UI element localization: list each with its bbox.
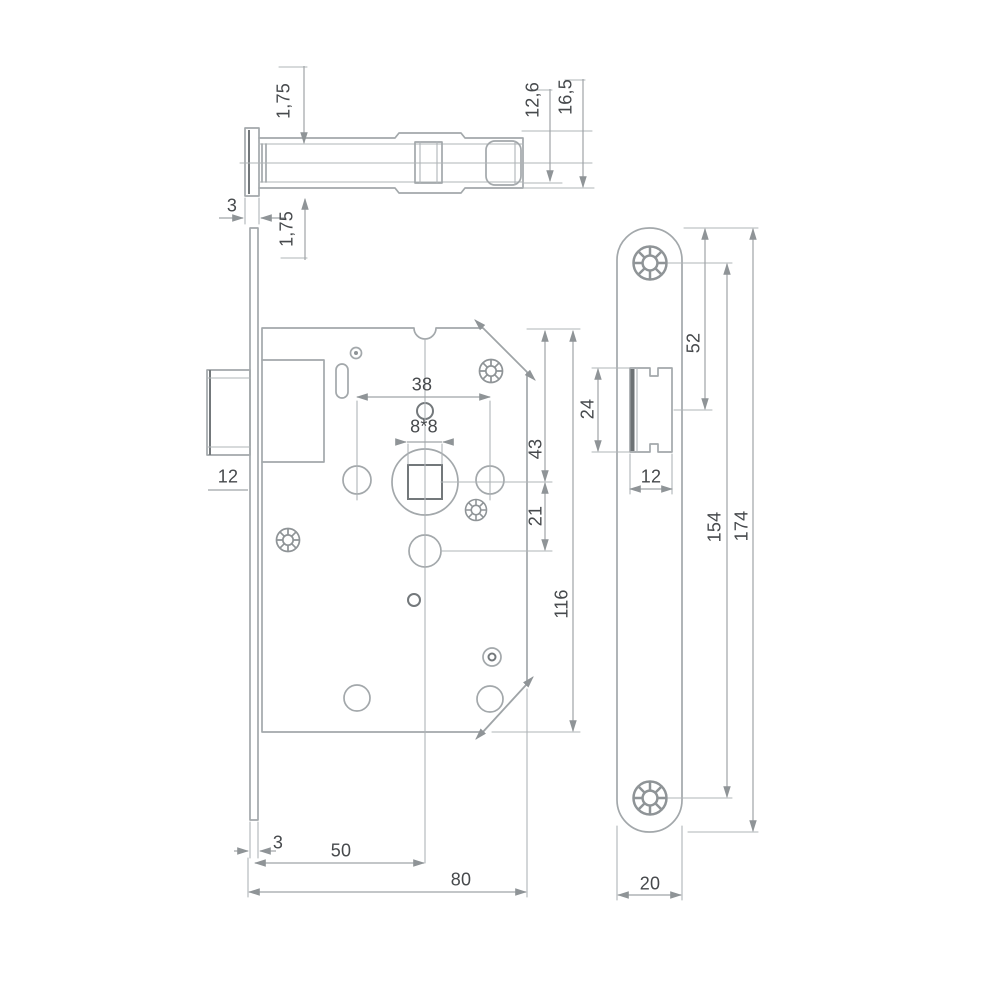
dim-label-front-spindle-square: 8*8 xyxy=(410,417,438,438)
dim-label-front-latch-width: 12 xyxy=(218,467,238,488)
lock-case-outline xyxy=(262,328,527,732)
fixing-hole xyxy=(477,686,503,712)
dim-label-front-spindle-to-lower: 21 xyxy=(526,506,547,526)
dim-label-front-case-height: 116 xyxy=(552,589,573,618)
latch-bolt xyxy=(207,370,250,455)
latch-body xyxy=(262,360,324,462)
dim-label-top-total-height: 16,5 xyxy=(556,79,577,115)
dim-label-front-hole-spacing: 38 xyxy=(412,375,432,396)
dim-label-top-offset-lower: 1,75 xyxy=(277,211,298,247)
faceplate-outline xyxy=(617,228,682,832)
dim-label-front-plate-thickness: 3 xyxy=(273,833,283,854)
dim-label-side-latch-width: 12 xyxy=(641,467,661,488)
dim-label-side-top-to-latch: 52 xyxy=(684,333,705,353)
fixing-hole xyxy=(344,685,370,711)
dim-label-top-inner-height: 12,6 xyxy=(523,82,544,118)
torx-screw-icon xyxy=(480,360,503,383)
lock-technical-drawing: 1,75 3 1,75 12,6 16,5 12 38 8*8 43 21 11… xyxy=(0,0,1000,1000)
dim-label-side-plate-length: 174 xyxy=(732,511,753,542)
dim-label-side-latch-height: 24 xyxy=(578,399,599,419)
faceplate-section xyxy=(245,128,259,196)
side-view xyxy=(592,228,758,900)
dim-label-side-screw-spacing: 154 xyxy=(705,512,726,543)
drawing-linework xyxy=(0,0,1000,1000)
dim-label-front-case-depth: 80 xyxy=(451,870,471,891)
dim-label-top-plate-thickness: 3 xyxy=(227,196,237,217)
torx-screw-icon xyxy=(277,529,300,552)
dim-label-front-top-to-spindle: 43 xyxy=(526,439,547,459)
dim-label-side-plate-width: 20 xyxy=(640,874,660,895)
torx-screw-icon xyxy=(634,247,667,280)
dim-label-front-backset: 50 xyxy=(331,841,351,862)
slot xyxy=(336,364,348,398)
torx-screw-icon xyxy=(634,782,667,815)
pin-hole xyxy=(408,594,420,606)
front-view xyxy=(207,228,580,897)
torx-screw-icon xyxy=(466,500,487,521)
latch-bolt-section xyxy=(630,368,672,452)
faceplate-edge xyxy=(250,228,258,820)
grommet-hole xyxy=(483,648,501,666)
dim-label-top-offset-upper: 1,75 xyxy=(274,83,295,119)
